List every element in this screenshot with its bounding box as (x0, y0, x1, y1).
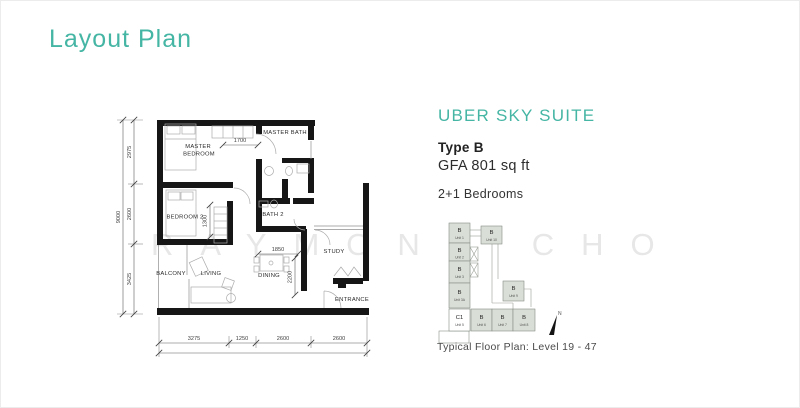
dim-1700: 1700 (234, 138, 246, 144)
svg-text:B: B (480, 315, 484, 321)
svg-text:Unit 3A: Unit 3A (454, 298, 466, 302)
dim-1250: 1250 (236, 336, 248, 342)
svg-text:Unit 3: Unit 3 (455, 275, 464, 279)
svg-text:Unit 2: Unit 2 (455, 256, 464, 260)
suite-name: UBER SKY SUITE (438, 106, 595, 126)
room-label-bath2: BATH 2 (262, 212, 283, 218)
room-label-bedroom2: BEDROOM 2 (166, 215, 203, 221)
floor-plan: MASTER BEDROOM MASTER BATH BEDROOM 2 BAT… (101, 86, 401, 371)
dim-2200: 2200 (288, 271, 294, 283)
svg-text:B: B (501, 315, 505, 321)
svg-text:Unit 7: Unit 7 (498, 323, 507, 327)
room-label-living: LIVING (201, 271, 222, 277)
svg-text:B: B (458, 228, 462, 234)
svg-text:C1: C1 (456, 315, 463, 321)
svg-text:N: N (558, 311, 562, 317)
unit-box-1: B Unit 1 (449, 223, 470, 243)
svg-text:B: B (512, 286, 516, 292)
unit-box-10: B Unit 10 (481, 226, 502, 244)
unit-box-3a: B Unit 3A (449, 283, 470, 308)
unit-box-2: B Unit 2 (449, 243, 470, 261)
room-label-balcony: BALCONY (156, 271, 185, 277)
key-plan-caption: Typical Floor Plan: Level 19 - 47 (437, 341, 597, 353)
plan-dimensions (117, 120, 367, 357)
svg-text:Unit 9: Unit 9 (509, 294, 518, 298)
dim-3275: 3275 (188, 336, 200, 342)
key-plan: B Unit 1 B Unit 10 B Unit 2 B Unit 3 B (429, 209, 633, 361)
dim-3425: 3425 (127, 273, 133, 285)
dim-1300: 1300 (203, 215, 209, 227)
svg-text:Unit 5: Unit 5 (455, 323, 464, 327)
page-title: Layout Plan (49, 25, 192, 54)
room-label-entrance: ENTRANCE (335, 297, 369, 303)
svg-text:B: B (458, 290, 462, 296)
svg-text:B: B (522, 315, 526, 321)
gfa-label: GFA 801 sq ft (438, 158, 595, 174)
type-label: Type B (438, 140, 595, 155)
dim-1850: 1850 (272, 247, 284, 253)
svg-text:Unit 10: Unit 10 (486, 238, 497, 242)
unit-box-7: B Unit 7 (492, 309, 513, 331)
unit-info: UBER SKY SUITE Type B GFA 801 sq ft 2+1 … (438, 106, 595, 201)
room-label-master-bath: MASTER BATH (263, 130, 307, 136)
svg-text:B: B (490, 230, 494, 236)
svg-text:Unit 6: Unit 6 (477, 323, 486, 327)
unit-box-8: B Unit 8 (513, 309, 535, 331)
svg-text:B: B (458, 267, 462, 273)
unit-box-c1-5: C1 Unit 5 (449, 309, 470, 331)
dim-2600-left: 2600 (127, 208, 133, 220)
north-arrow-icon: N (549, 311, 562, 335)
unit-box-9: B Unit 9 (503, 281, 524, 301)
slide: Layout Plan RAYMOND CHO (0, 0, 800, 408)
unit-box-6: B Unit 6 (471, 309, 492, 331)
dim-2975: 2975 (127, 146, 133, 158)
svg-text:Unit 1: Unit 1 (455, 236, 464, 240)
dim-9000: 9000 (116, 211, 122, 223)
dim-2600-b2: 2600 (333, 336, 345, 342)
dim-2600-b1: 2600 (277, 336, 289, 342)
svg-text:Unit 8: Unit 8 (520, 323, 529, 327)
bedrooms-label: 2+1 Bedrooms (438, 187, 595, 201)
room-label-master-bedroom: MASTER BEDROOM (183, 144, 215, 158)
svg-text:B: B (458, 248, 462, 254)
unit-box-3: B Unit 3 (449, 261, 470, 283)
room-label-dining: DINING (258, 273, 280, 279)
room-label-study: STUDY (324, 249, 345, 255)
